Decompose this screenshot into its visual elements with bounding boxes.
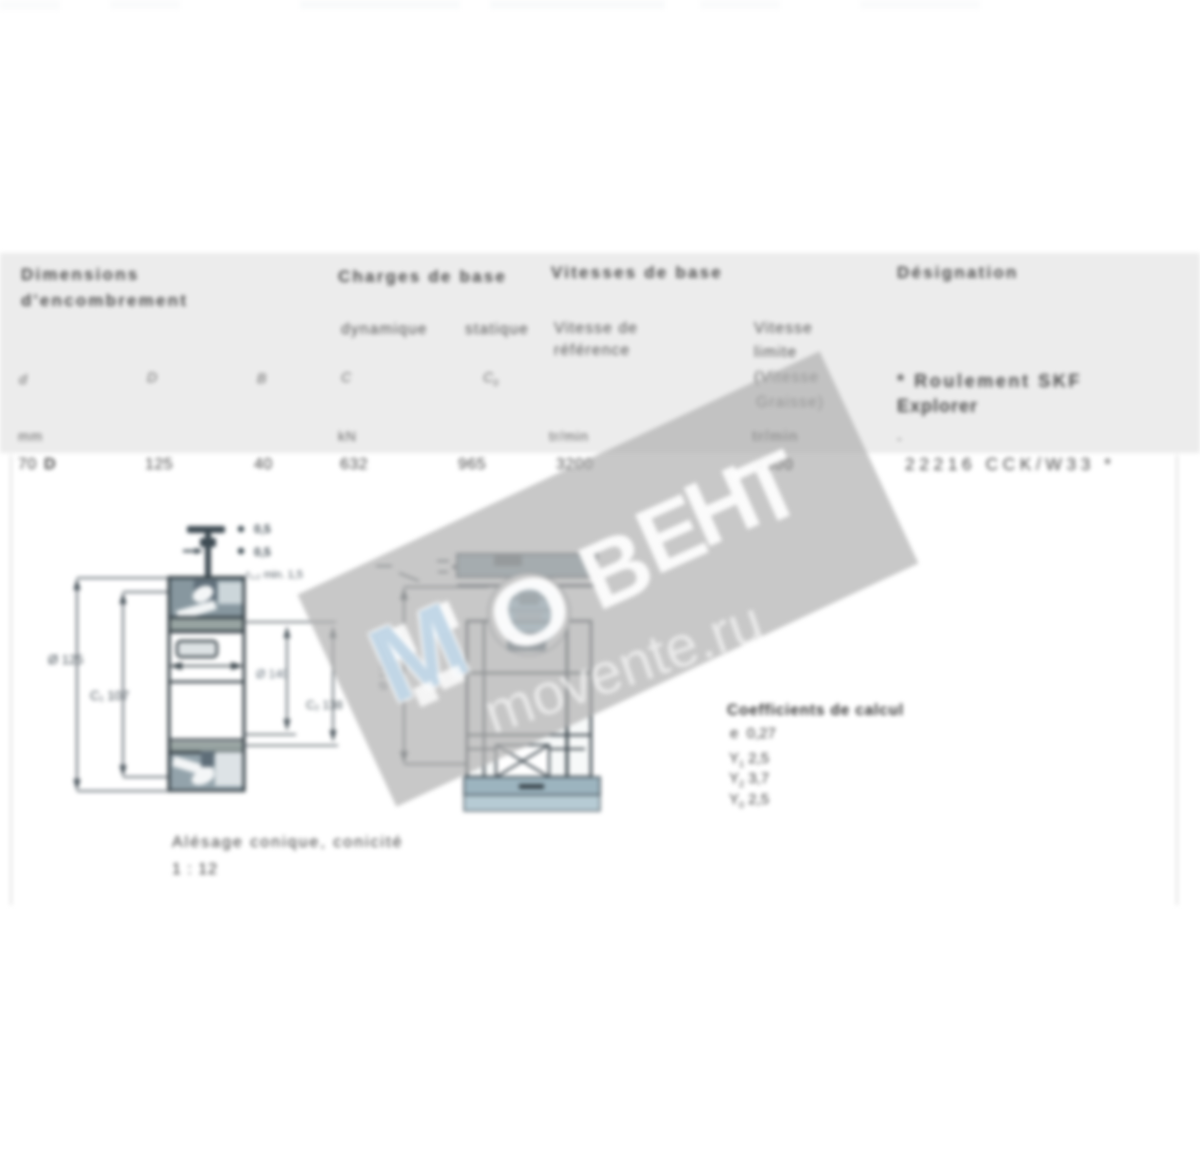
svg-text:C₁ 107: C₁ 107 [90,688,129,703]
svg-text:Ø 140: Ø 140 [256,667,289,681]
svg-text:r₁,₂ min. 1,5: r₁,₂ min. 1,5 [246,569,303,581]
svg-text:0,5: 0,5 [254,522,271,536]
svg-text:Ø 125: Ø 125 [48,652,83,667]
svg-text:C₂ 138: C₂ 138 [306,698,343,712]
svg-text:0,5: 0,5 [254,545,271,559]
